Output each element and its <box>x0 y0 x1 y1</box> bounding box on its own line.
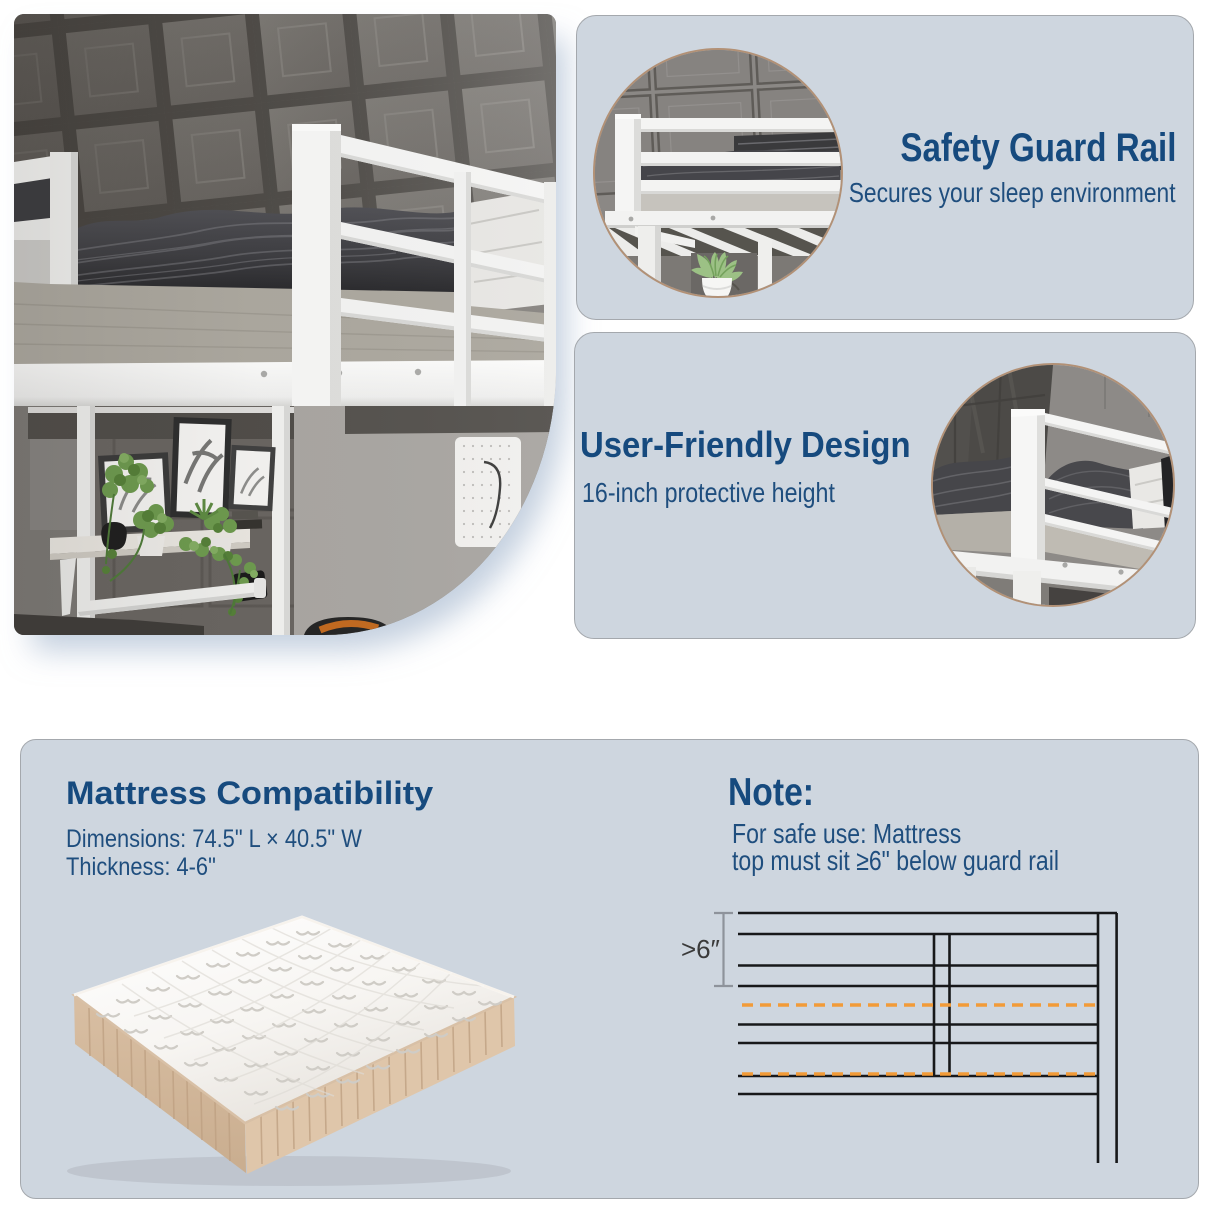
svg-text:>6″: >6″ <box>681 934 720 964</box>
